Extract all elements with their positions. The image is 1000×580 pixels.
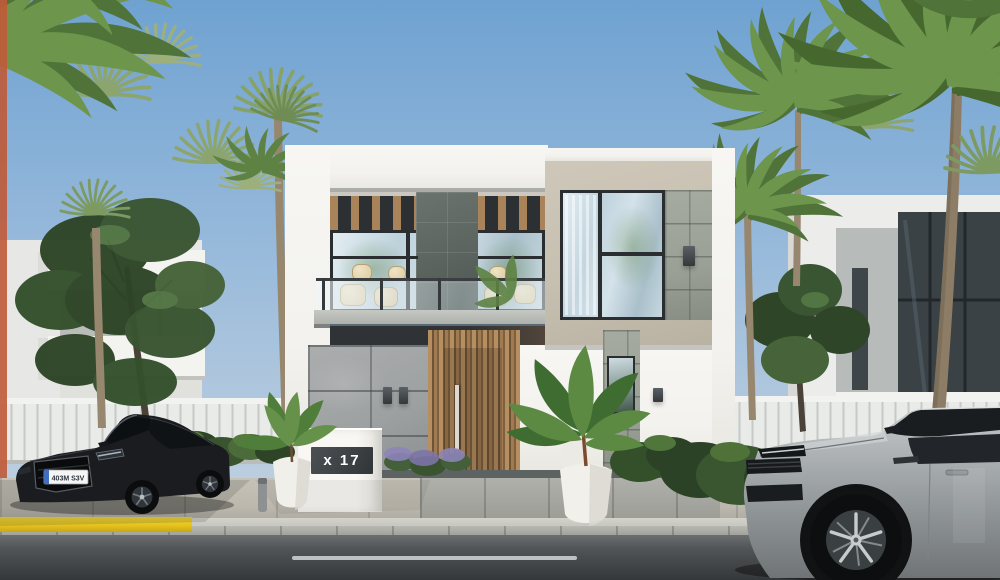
silver-suv — [735, 407, 1000, 580]
balcony-plant — [474, 254, 531, 316]
lower-intake — [746, 484, 803, 502]
planter-center — [506, 345, 652, 526]
bollard-light — [258, 478, 267, 512]
black-sedan: 403M S3V — [10, 414, 234, 515]
plate-euroband — [44, 470, 49, 484]
front-wheel — [125, 480, 159, 514]
side-glass — [908, 434, 1000, 464]
lavender-shrubs — [384, 447, 471, 476]
rear-wheel — [196, 470, 224, 498]
license-plate-text: 403M S3V — [52, 476, 85, 483]
foreground-scenery: 403M S3V — [0, 0, 1000, 580]
architectural-render: x 17 — [0, 0, 1000, 580]
body-reflection — [953, 468, 985, 543]
